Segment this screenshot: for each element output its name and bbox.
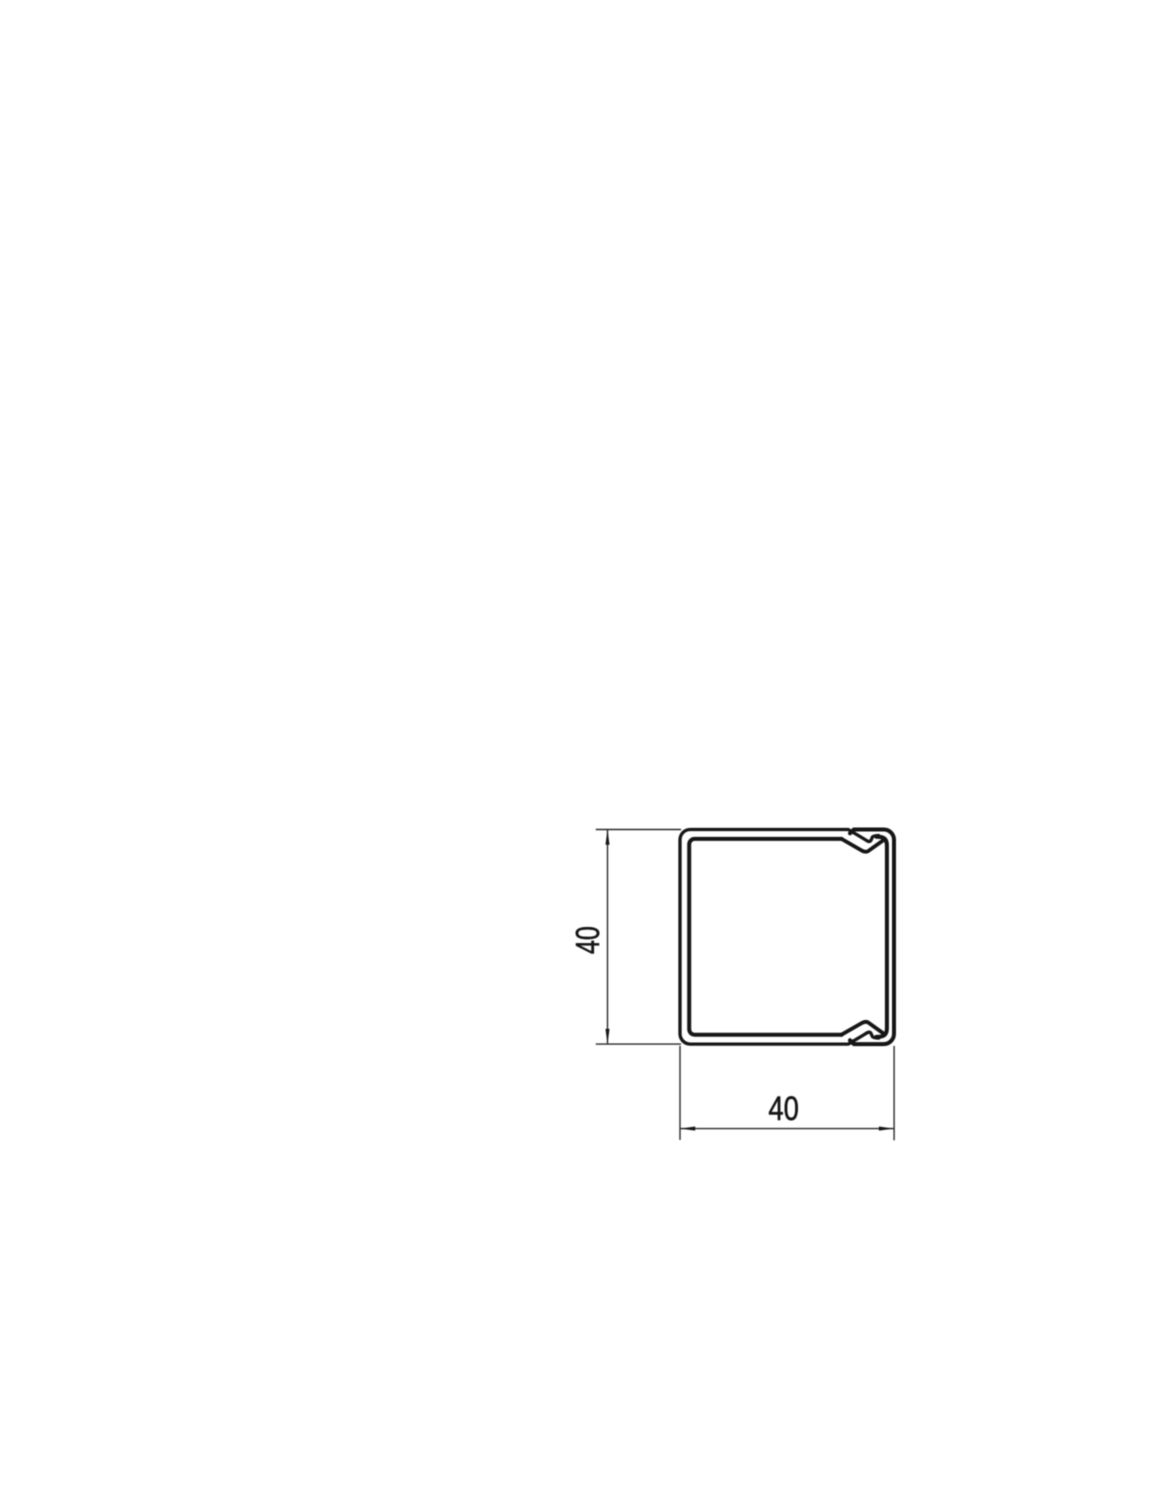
svg-text:40: 40 xyxy=(569,926,606,954)
svg-text:40: 40 xyxy=(768,1090,799,1128)
